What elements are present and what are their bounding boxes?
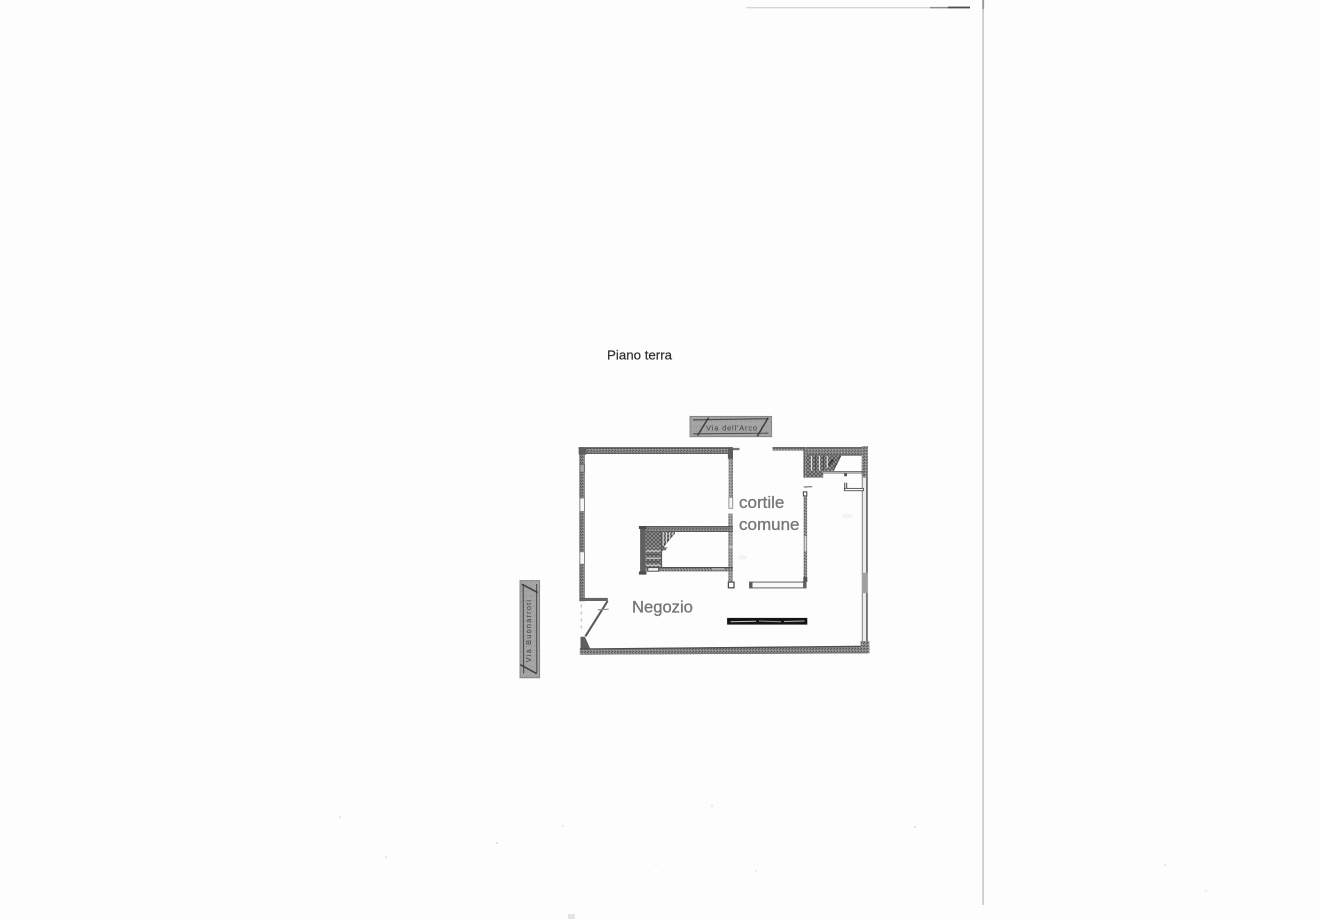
svg-text:Via Buonarroti: Via Buonarroti (524, 599, 533, 663)
svg-text:Negozio: Negozio (632, 597, 693, 616)
svg-text:cortile: cortile (739, 493, 784, 512)
svg-text:comune: comune (739, 515, 799, 534)
svg-text:Via dell'Arco: Via dell'Arco (706, 423, 758, 432)
svg-text:Piano terra: Piano terra (607, 348, 673, 363)
